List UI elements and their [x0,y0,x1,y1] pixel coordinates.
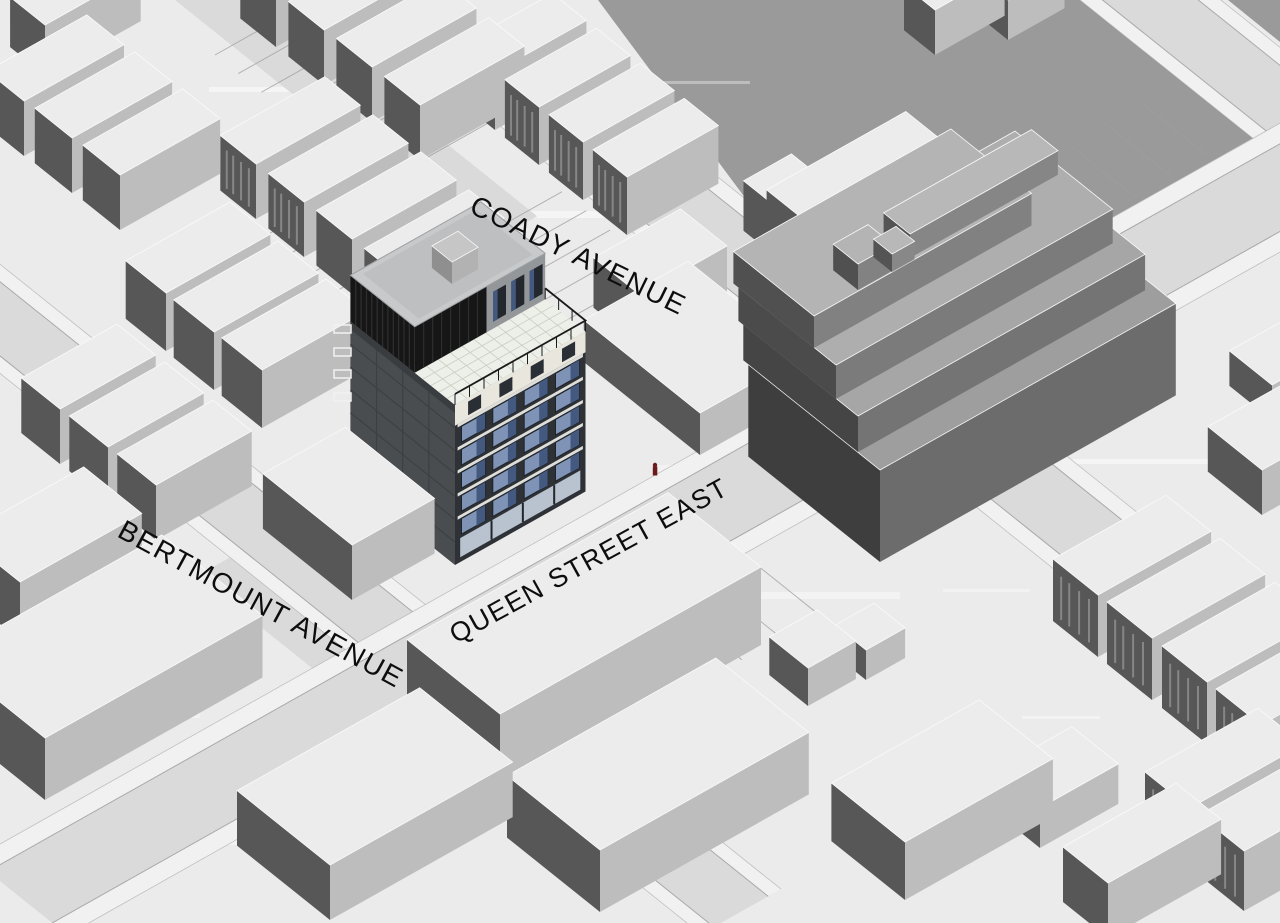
site-plan-viewport: COADY AVENUE BERTMOUNT AVENUE QUEEN STRE… [0,0,1280,923]
pedestrian-marker [653,463,658,476]
axonometric-site-plan: COADY AVENUE BERTMOUNT AVENUE QUEEN STRE… [0,0,1280,923]
